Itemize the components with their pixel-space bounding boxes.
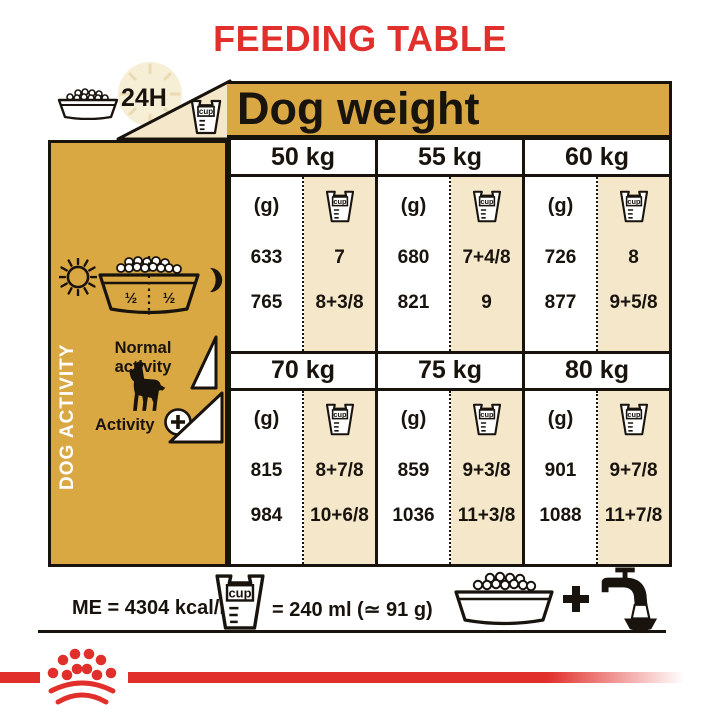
cups-value: 10+6/8 bbox=[310, 494, 369, 539]
activity-plus-triangle-icon bbox=[167, 389, 225, 445]
crown-logo bbox=[44, 644, 124, 710]
cups-value: 11+3/8 bbox=[458, 494, 516, 539]
cup-icon: cup bbox=[619, 190, 649, 223]
grams-value: 901 bbox=[545, 449, 577, 494]
weight-column: (g) 726 877 cup 8 9+5/8 bbox=[522, 177, 669, 351]
moon-icon bbox=[197, 265, 225, 295]
grams-label: (g) bbox=[254, 195, 280, 218]
weight-column: (g) 633 765 cup 7 8+3/8 bbox=[231, 177, 375, 351]
cup-icon: cup bbox=[190, 99, 222, 135]
grams-value: 680 bbox=[398, 235, 430, 280]
feeding-table-page: FEEDING TABLE 24H cup Dog weight bbox=[0, 0, 720, 720]
dog-weight-header: Dog weight bbox=[227, 81, 672, 138]
cups-value: 8+3/8 bbox=[315, 280, 363, 325]
grams-label: (g) bbox=[254, 408, 280, 431]
cups-value: 8+7/8 bbox=[315, 449, 363, 494]
grams-value: 1088 bbox=[539, 494, 581, 539]
grams-value: 984 bbox=[251, 494, 283, 539]
grams-value: 859 bbox=[398, 449, 430, 494]
svg-text:cup: cup bbox=[228, 585, 251, 600]
page-title: FEEDING TABLE bbox=[0, 18, 720, 60]
weight-header: 75 kg bbox=[375, 354, 522, 388]
weight-header: 50 kg bbox=[231, 140, 375, 174]
half-bowl-icon: ½ ½ bbox=[95, 255, 203, 319]
faucet-icon bbox=[592, 566, 660, 634]
activity-plus-label: Activity bbox=[95, 416, 155, 435]
weight-header: 60 kg bbox=[522, 140, 669, 174]
cup-icon: cup bbox=[472, 190, 502, 223]
footer-divider-line bbox=[38, 630, 666, 633]
weight-column: (g) 815 984 cup 8+7/8 10+6/8 bbox=[231, 391, 375, 565]
svg-text:cup: cup bbox=[480, 196, 494, 205]
cup-icon: cup bbox=[325, 403, 355, 436]
svg-text:cup: cup bbox=[627, 196, 641, 205]
grams-value: 877 bbox=[545, 280, 577, 325]
grams-value: 1036 bbox=[392, 494, 434, 539]
weight-column: (g) 680 821 cup 7+4/8 9 bbox=[375, 177, 522, 351]
grams-value: 726 bbox=[545, 235, 577, 280]
grams-value: 821 bbox=[398, 280, 430, 325]
grams-label: (g) bbox=[401, 408, 427, 431]
table-group-body: (g) 633 765 cup 7 8+3/8 (g) 680 821 cup … bbox=[231, 177, 669, 354]
cups-value: 11+7/8 bbox=[605, 494, 663, 539]
cup-icon: cup bbox=[619, 403, 649, 436]
svg-text:cup: cup bbox=[199, 107, 213, 116]
sun-icon bbox=[59, 258, 97, 296]
cups-value: 9 bbox=[481, 280, 492, 325]
svg-text:½: ½ bbox=[125, 290, 138, 307]
svg-text:½: ½ bbox=[163, 290, 176, 307]
svg-text:cup: cup bbox=[333, 410, 347, 419]
cups-value: 9+5/8 bbox=[609, 280, 657, 325]
cups-value: 9+7/8 bbox=[609, 449, 657, 494]
svg-text:cup: cup bbox=[627, 410, 641, 419]
grams-label: (g) bbox=[548, 408, 574, 431]
svg-text:cup: cup bbox=[333, 196, 347, 205]
weight-header-row: 50 kg 55 kg 60 kg bbox=[231, 140, 669, 177]
cup-icon: cup bbox=[214, 573, 266, 631]
grams-value: 633 bbox=[251, 235, 283, 280]
cups-value: 9+3/8 bbox=[462, 449, 510, 494]
weight-header: 80 kg bbox=[522, 354, 669, 388]
weight-column: (g) 859 1036 cup 9+3/8 11+3/8 bbox=[375, 391, 522, 565]
weight-header-row: 70 kg 75 kg 80 kg bbox=[231, 354, 669, 391]
weight-column: (g) 901 1088 cup 9+7/8 11+7/8 bbox=[522, 391, 669, 565]
normal-activity-triangle-icon bbox=[189, 333, 219, 391]
cups-value: 7+4/8 bbox=[462, 235, 510, 280]
weight-header: 70 kg bbox=[231, 354, 375, 388]
dog-activity-sidebar: ½ ½ DOG ACTIVITY Normal activity Activit… bbox=[48, 140, 228, 567]
plus-icon bbox=[563, 586, 589, 612]
grams-label: (g) bbox=[401, 195, 427, 218]
cup-icon: cup bbox=[325, 190, 355, 223]
grams-label: (g) bbox=[548, 195, 574, 218]
cups-value: 7 bbox=[334, 235, 345, 280]
kibble-bowl-icon bbox=[56, 86, 120, 120]
weight-header: 55 kg bbox=[375, 140, 522, 174]
feeding-values-table: 50 kg 55 kg 60 kg (g) 633 765 cup 7 8+3/… bbox=[228, 137, 672, 567]
table-group-body: (g) 815 984 cup 8+7/8 10+6/8 (g) 859 103… bbox=[231, 391, 669, 565]
food-bowl-icon bbox=[452, 570, 556, 628]
grams-value: 815 bbox=[251, 449, 283, 494]
cup-icon: cup bbox=[472, 403, 502, 436]
dog-activity-label: DOG ACTIVITY bbox=[57, 331, 79, 503]
cup-equivalence-label: = 240 ml (≃ 91 g) bbox=[272, 597, 433, 622]
cups-value: 8 bbox=[628, 235, 639, 280]
grams-value: 765 bbox=[251, 280, 283, 325]
duration-label: 24H bbox=[121, 84, 167, 113]
svg-text:cup: cup bbox=[480, 410, 494, 419]
